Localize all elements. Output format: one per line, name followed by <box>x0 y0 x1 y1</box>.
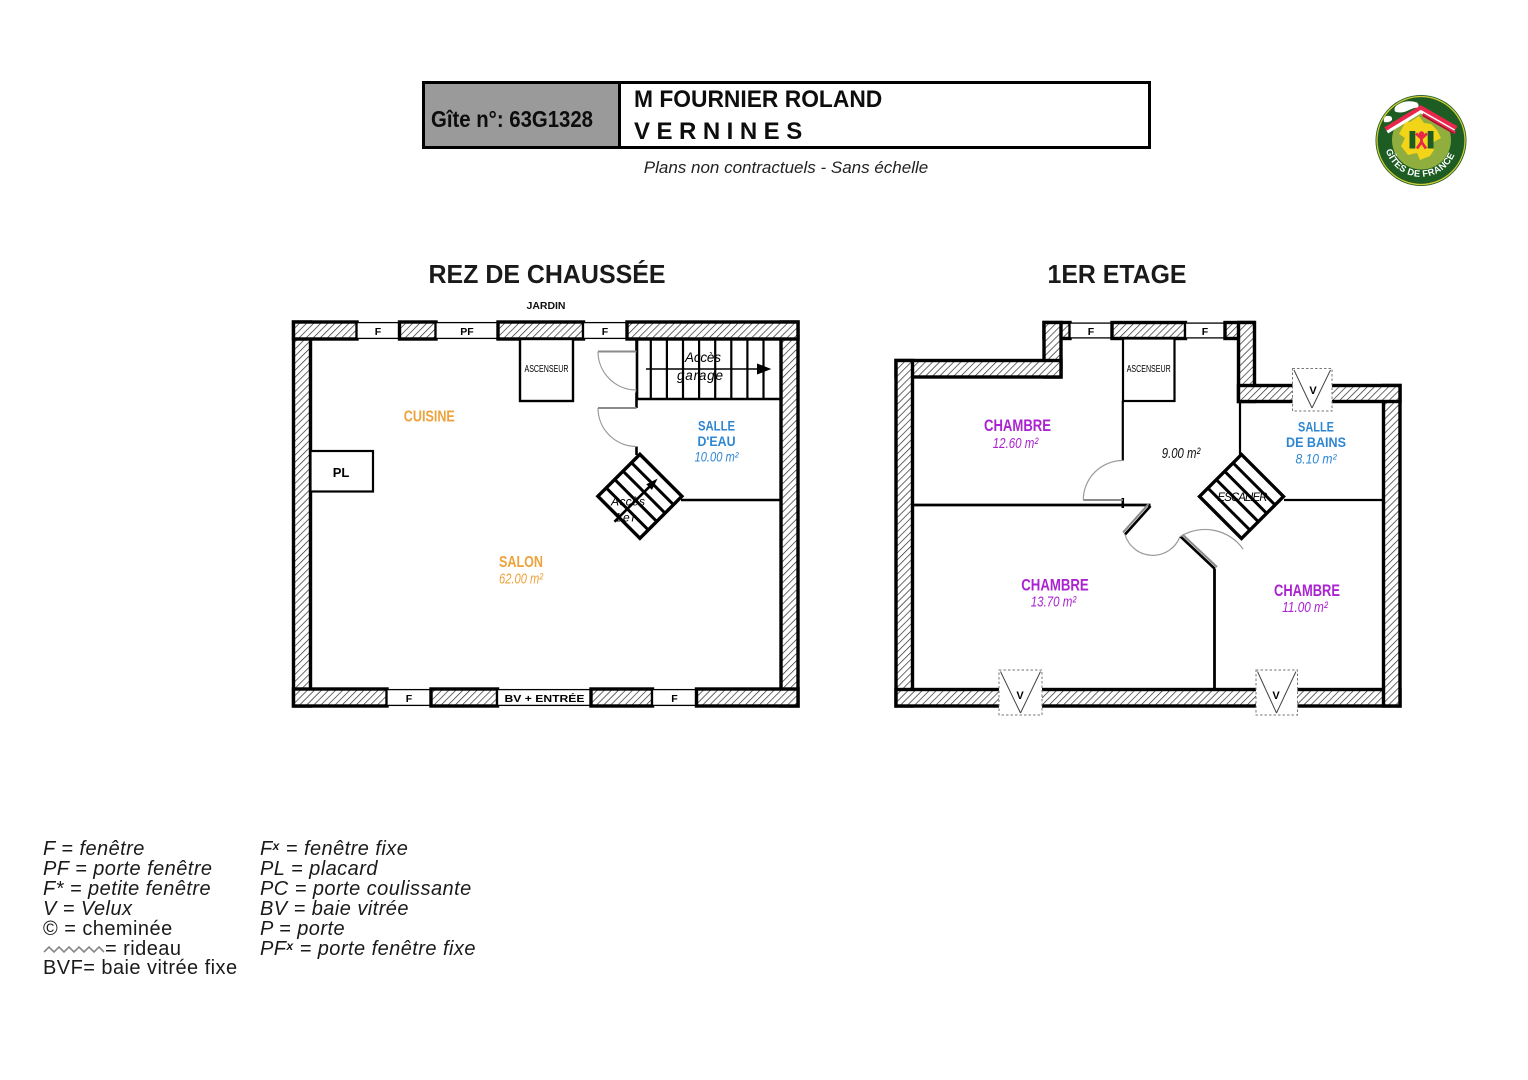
svg-text:1er: 1er <box>615 511 637 525</box>
svg-text:V: V <box>1272 690 1280 702</box>
svg-text:DE BAINS: DE BAINS <box>1286 434 1346 450</box>
svg-text:SALLE: SALLE <box>698 418 735 434</box>
svg-text:CHAMBRE: CHAMBRE <box>1021 577 1089 595</box>
svg-text:JARDIN: JARDIN <box>527 300 566 312</box>
svg-text:ASCENSEUR: ASCENSEUR <box>1127 364 1171 375</box>
svg-text:9.00 m²: 9.00 m² <box>1162 445 1201 462</box>
svg-text:F: F <box>406 693 413 705</box>
svg-text:F: F <box>671 693 678 705</box>
svg-text:F: F <box>1202 326 1209 338</box>
svg-text:Accès: Accès <box>610 495 645 509</box>
svg-text:62.00 m²: 62.00 m² <box>499 571 544 588</box>
svg-text:ASCENSEUR: ASCENSEUR <box>525 364 569 375</box>
svg-text:8.10 m²: 8.10 m² <box>1296 451 1338 467</box>
svg-text:CHAMBRE: CHAMBRE <box>1274 582 1340 600</box>
svg-text:SALON: SALON <box>499 554 543 571</box>
svg-text:CUISINE: CUISINE <box>404 409 455 426</box>
svg-text:D'EAU: D'EAU <box>698 433 736 449</box>
svg-text:garage: garage <box>677 368 723 383</box>
svg-text:V: V <box>1016 690 1024 702</box>
svg-text:Accès: Accès <box>684 350 721 365</box>
svg-text:13.70 m²: 13.70 m² <box>1031 594 1077 611</box>
svg-text:PF: PF <box>460 326 474 338</box>
svg-text:BV + ENTRÉE: BV + ENTRÉE <box>505 692 585 705</box>
svg-text:PL: PL <box>333 465 350 480</box>
svg-text:SALLE: SALLE <box>1298 419 1334 435</box>
svg-text:1ER ETAGE: 1ER ETAGE <box>1048 259 1187 289</box>
svg-text:REZ DE CHAUSSÉE: REZ DE CHAUSSÉE <box>429 259 666 289</box>
svg-text:12.60 m²: 12.60 m² <box>993 435 1039 452</box>
svg-text:F: F <box>602 326 609 338</box>
svg-text:11.00 m²: 11.00 m² <box>1282 599 1328 616</box>
svg-text:F: F <box>1088 326 1095 338</box>
svg-text:ESCALIER: ESCALIER <box>1218 492 1268 504</box>
svg-text:CHAMBRE: CHAMBRE <box>984 417 1051 435</box>
svg-text:V: V <box>1309 385 1317 397</box>
svg-text:F: F <box>375 326 382 338</box>
svg-text:10.00 m²: 10.00 m² <box>695 449 740 465</box>
